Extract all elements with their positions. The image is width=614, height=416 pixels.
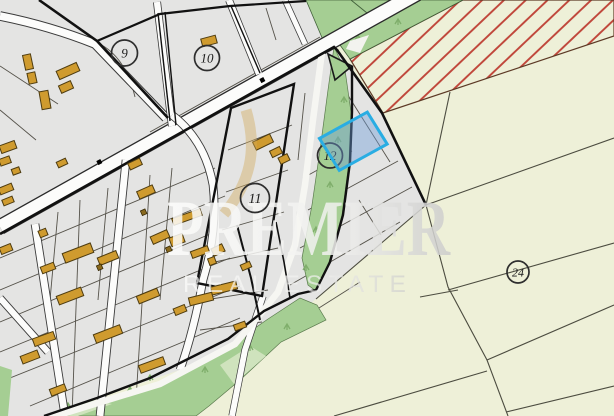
- svg-text:REAL ESTATE: REAL ESTATE: [183, 271, 412, 298]
- svg-text:24: 24: [512, 265, 524, 279]
- svg-text:PREMIER: PREMIER: [167, 185, 451, 273]
- svg-text:10: 10: [201, 51, 215, 66]
- svg-text:9: 9: [121, 46, 128, 61]
- svg-text:11: 11: [249, 192, 262, 207]
